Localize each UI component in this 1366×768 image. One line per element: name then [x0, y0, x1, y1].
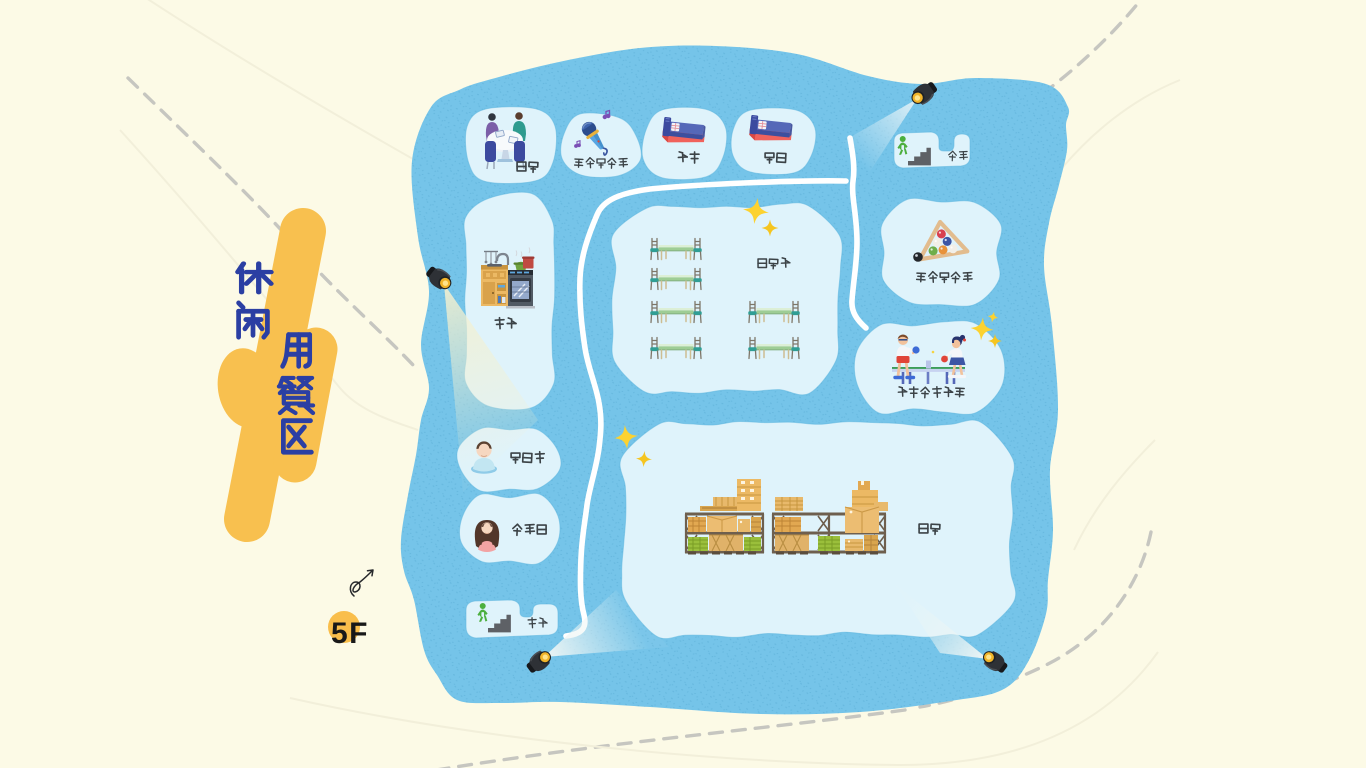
svg-text:5F: 5F — [331, 617, 369, 650]
